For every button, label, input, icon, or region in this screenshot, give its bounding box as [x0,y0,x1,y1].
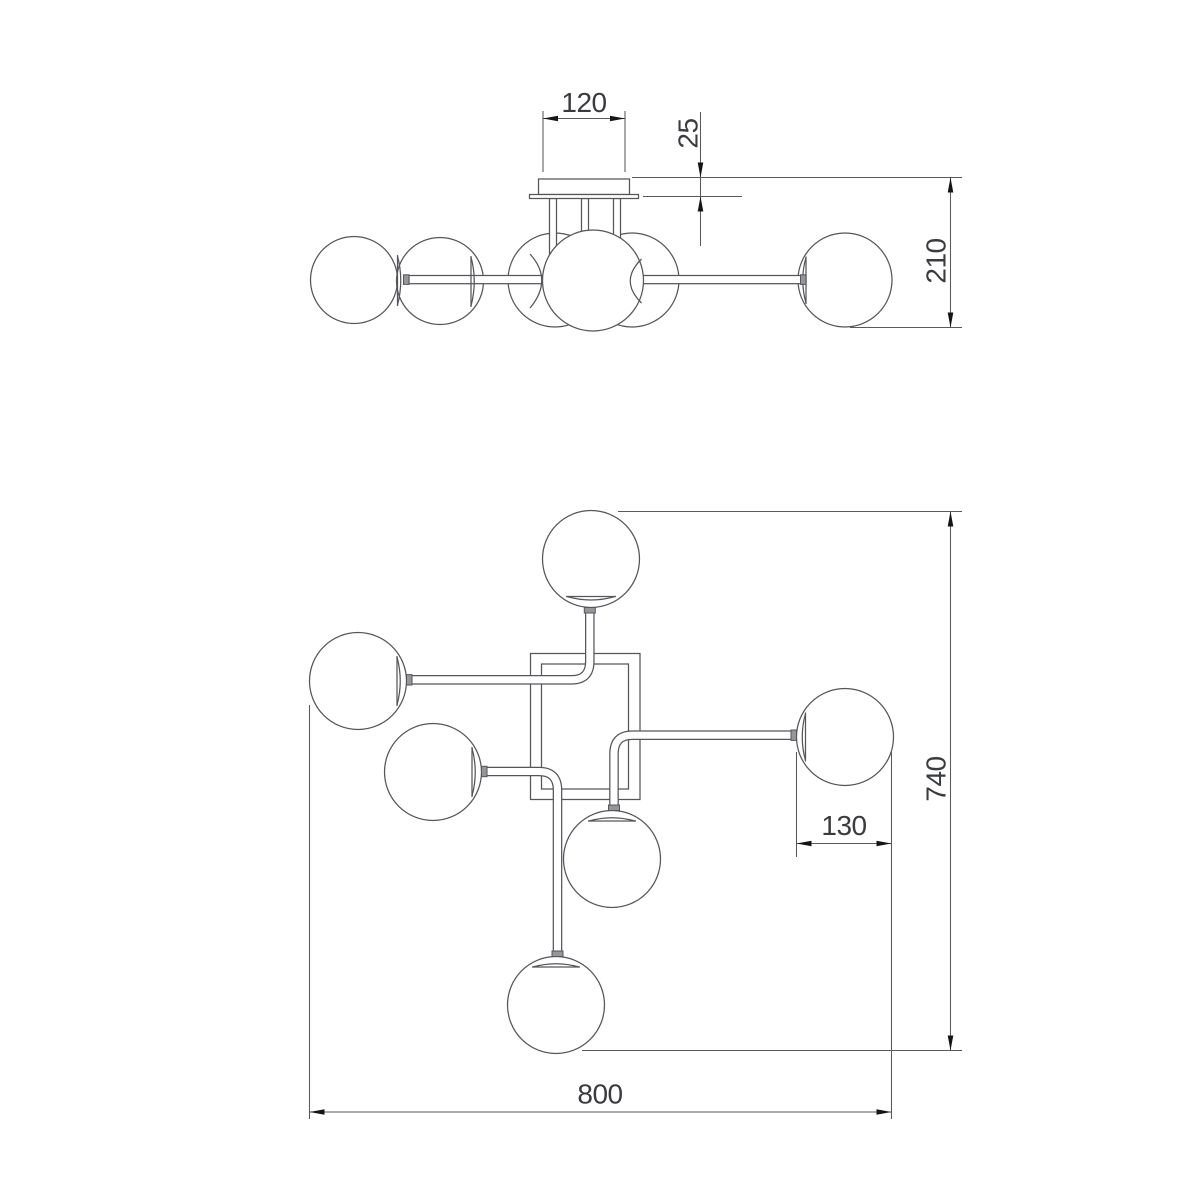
plan-view: 740 130 800 [310,511,963,1120]
arm-collar [482,766,488,776]
canopy-plate [530,195,639,199]
arm-collar [801,275,807,285]
arm-collar [584,608,595,614]
arm-outline [487,772,558,952]
arm-collar [609,805,620,811]
arm-collar [552,951,563,957]
arrowhead-left [543,116,558,122]
glass-sphere-front-center [543,230,644,331]
arm-outline [412,613,590,680]
dim-text-overall-height: 210 [921,238,952,283]
glass-sphere-center-bottom [564,811,661,908]
canopy-body [539,179,630,195]
dimension-canopy-height: 25 [643,112,742,246]
arm-fill [412,613,590,680]
canopy-stem-center [582,199,589,233]
arrowhead-down [948,1036,954,1051]
dimension-overall-height: 210 [632,178,962,328]
dim-text-canopy-height: 25 [673,118,704,148]
glass-sphere-left [310,633,407,730]
glass-sphere-mid-left [385,724,482,821]
glass-sphere-right [798,233,892,327]
arrowhead-left [797,841,812,847]
dim-text-overall-width: 800 [577,1079,622,1110]
glass-sphere-top [543,511,640,608]
arm-midleft-bottom [487,772,558,952]
glass-sphere-far-left [311,237,398,324]
dim-text-shade-diameter: 130 [821,810,866,841]
drawing-sheet: 120 25 210 [0,0,1200,1200]
arm-collar [791,730,797,740]
arrowhead-right [610,116,625,122]
arrowhead-up [948,178,954,193]
arm-left-top [412,613,590,680]
arrowhead-up [698,197,704,212]
dimension-canopy-width: 120 [543,87,625,172]
glass-sphere-bottom [508,957,605,1054]
arrowhead-right [877,841,892,847]
arrowhead-left [310,1109,325,1115]
arm-collar [404,275,410,285]
arrowhead-up [948,512,954,527]
arrowhead-down [698,163,704,178]
dim-text-overall-depth: 740 [921,756,952,801]
dimension-overall-depth: 740 [582,512,962,1051]
glass-sphere-right [797,689,894,786]
arm-fill [487,772,558,952]
technical-drawing: 120 25 210 [0,0,1200,1200]
arrowhead-down [948,313,954,328]
side-view: 120 25 210 [311,87,963,331]
dim-text-canopy-width: 120 [561,87,606,118]
arm-collar [407,675,413,685]
arrowhead-right [877,1109,892,1115]
